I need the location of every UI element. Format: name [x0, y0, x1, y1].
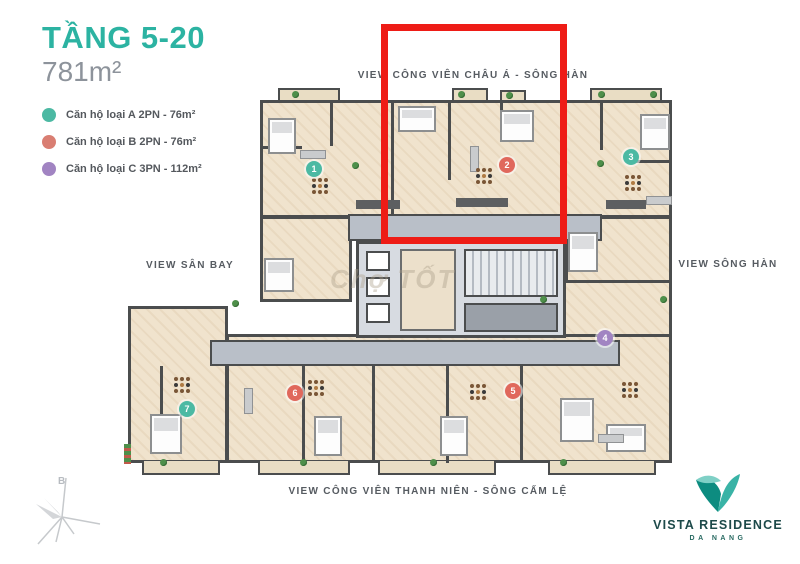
plant — [160, 459, 167, 466]
plant — [292, 91, 299, 98]
dining-table — [308, 380, 312, 384]
technical-shaft — [464, 303, 558, 332]
bed — [560, 398, 594, 442]
bed — [150, 414, 182, 454]
highlight-rectangle — [381, 24, 567, 244]
unit-badge-5: 5 — [505, 383, 521, 399]
plant — [430, 459, 437, 466]
wall — [372, 366, 375, 463]
plant — [598, 91, 605, 98]
wall — [330, 100, 333, 146]
wall — [600, 100, 603, 150]
plant — [300, 459, 307, 466]
dining-table — [174, 377, 178, 381]
view-label-right: VIEW SÔNG HÀN — [672, 259, 784, 270]
elevator — [366, 303, 390, 323]
dining-table — [312, 178, 316, 182]
dining-table — [625, 175, 629, 179]
staircase — [464, 249, 558, 297]
view-label-left: VIEW SÂN BAY — [135, 260, 245, 271]
flower-box — [124, 444, 131, 464]
sofa — [646, 196, 672, 205]
plant — [352, 162, 359, 169]
plant — [540, 296, 547, 303]
sofa — [598, 434, 624, 443]
sofa — [244, 388, 253, 414]
bed — [314, 416, 342, 456]
logo-brand-text: VISTA RESIDENCE — [646, 518, 790, 532]
logo-city-text: DA NANG — [646, 535, 790, 542]
balcony — [142, 461, 220, 475]
unit-badge-6: 6 — [287, 385, 303, 401]
plant — [560, 459, 567, 466]
bed — [568, 232, 598, 272]
compass-rose: B — [22, 462, 106, 558]
wall — [302, 366, 305, 463]
kitchen-counter — [606, 200, 646, 209]
wall — [520, 366, 523, 463]
plant — [660, 296, 667, 303]
bed — [440, 416, 468, 456]
plant — [597, 160, 604, 167]
bed — [264, 258, 294, 292]
floorplan-page: TẦNG 5-20 781m² Căn hộ loại A 2PN - 76m²… — [0, 0, 800, 564]
unit-badge-1: 1 — [306, 161, 322, 177]
plant — [232, 300, 239, 307]
bed — [268, 118, 296, 154]
dining-table — [622, 382, 626, 386]
unit-badge-3: 3 — [623, 149, 639, 165]
bed — [640, 114, 670, 150]
view-label-bottom: VIEW CÔNG VIÊN THANH NIÊN - SÔNG CẤM LỆ — [268, 486, 588, 497]
sofa — [300, 150, 326, 159]
compass-north-label: B — [58, 476, 65, 487]
unit-badge-4: 4 — [597, 330, 613, 346]
vista-logo-icon — [694, 472, 742, 514]
balcony — [378, 461, 496, 475]
dining-table — [470, 384, 474, 388]
unit-badge-7: 7 — [179, 401, 195, 417]
watermark: Chợ TỐT — [330, 264, 455, 295]
plant — [650, 91, 657, 98]
corridor-lower — [210, 340, 620, 366]
brand-logo: VISTA RESIDENCE DA NANG — [646, 472, 790, 542]
